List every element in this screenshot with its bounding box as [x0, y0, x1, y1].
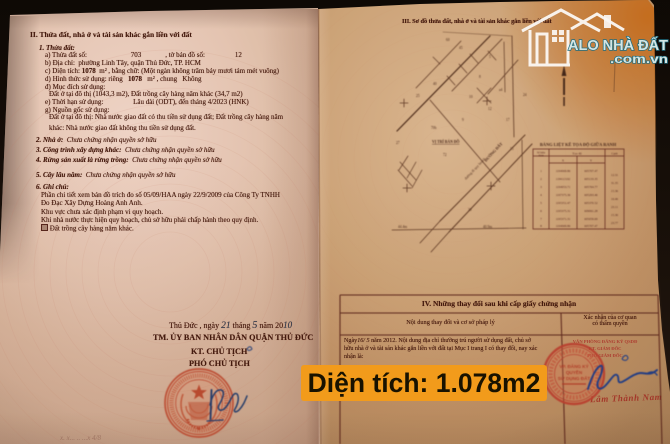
svg-text:40: 40: [433, 82, 437, 86]
svg-text:609061.28: 609061.28: [584, 209, 598, 213]
svg-text:1195371.31: 1195371.31: [556, 217, 571, 221]
svg-text:6: 6: [540, 209, 542, 213]
svg-text:70b: 70b: [431, 126, 437, 130]
svg-text:1195375.31: 1195375.31: [556, 209, 571, 213]
svg-text:44.4m: 44.4m: [398, 225, 407, 229]
svg-text:12: 12: [488, 107, 492, 111]
svg-text:16.46: 16.46: [611, 197, 618, 201]
svg-text:4: 4: [540, 193, 542, 197]
svg-text:Tọa độ: Tọa độ: [572, 152, 582, 156]
svg-text:BẢNG LIỆT KÊ TỌA ĐỘ GIỮA RANH: BẢNG LIỆT KÊ TỌA ĐỘ GIỮA RANH: [540, 142, 617, 147]
svg-text:điểm: điểm: [538, 155, 544, 158]
svg-text:605707.47: 605707.47: [584, 224, 598, 228]
svg-text:605133.35: 605133.35: [584, 177, 598, 181]
svg-text:10: 10: [469, 95, 473, 99]
svg-text:31.35: 31.35: [611, 181, 618, 185]
svg-text:72: 72: [443, 153, 447, 157]
svg-text:605370.52: 605370.52: [584, 201, 598, 205]
svg-text:605764.77: 605764.77: [584, 185, 598, 189]
svg-text:1197375.36: 1197375.36: [556, 193, 571, 197]
svg-text:9: 9: [462, 118, 464, 122]
svg-text:15: 15: [510, 147, 514, 151]
svg-text:Cạnh: Cạnh: [611, 152, 618, 156]
svg-text:8: 8: [479, 75, 481, 79]
svg-text:1194969.86: 1194969.86: [556, 169, 571, 173]
svg-text:VP. ĐĂNG KÝ: VP. ĐĂNG KÝ: [559, 363, 588, 369]
svg-text:30: 30: [468, 208, 472, 212]
svg-text:15.36: 15.36: [611, 189, 618, 193]
svg-text:SỬ DỤNG ĐẤT: SỬ DỤNG ĐẤT: [558, 375, 591, 381]
svg-text:15.36: 15.36: [611, 213, 618, 217]
svg-text:.com.vn: .com.vn: [610, 52, 668, 66]
svg-text:Y: Y: [590, 159, 593, 163]
svg-text:1195351.47: 1195351.47: [556, 201, 571, 205]
svg-text:60: 60: [446, 38, 450, 42]
svg-text:17: 17: [506, 118, 510, 122]
svg-text:1194113.92: 1194113.92: [556, 177, 571, 181]
svg-text:VỊ TRÍ BẢN ĐỒ: VỊ TRÍ BẢN ĐỒ: [432, 139, 460, 144]
svg-text:1194969.86: 1194969.86: [556, 224, 571, 228]
svg-text:3: 3: [540, 185, 542, 189]
svg-text:2: 2: [540, 177, 542, 181]
svg-text:5: 5: [489, 55, 491, 59]
svg-text:a4: a4: [499, 88, 503, 92]
svg-text:27: 27: [396, 141, 400, 145]
svg-text:7: 7: [540, 217, 542, 221]
svg-text:23.11: 23.11: [611, 205, 618, 209]
svg-text:8: 8: [540, 224, 542, 228]
svg-text:QUYỀN: QUYỀN: [566, 369, 583, 375]
svg-text:1: 1: [540, 169, 542, 173]
svg-text:23.77: 23.77: [611, 221, 618, 225]
svg-text:5: 5: [540, 201, 542, 205]
svg-text:605059.69: 605059.69: [584, 217, 598, 221]
svg-text:605293.46: 605293.46: [584, 193, 598, 197]
svg-text:40.9m: 40.9m: [483, 225, 492, 229]
svg-text:24: 24: [523, 93, 527, 97]
svg-text:605707.47: 605707.47: [584, 169, 598, 173]
svg-text:12.31: 12.31: [611, 173, 618, 177]
svg-text:1194953.71: 1194953.71: [556, 185, 571, 189]
svg-text:X: X: [562, 159, 565, 163]
svg-text:45: 45: [459, 46, 463, 50]
svg-text:25: 25: [416, 94, 420, 98]
